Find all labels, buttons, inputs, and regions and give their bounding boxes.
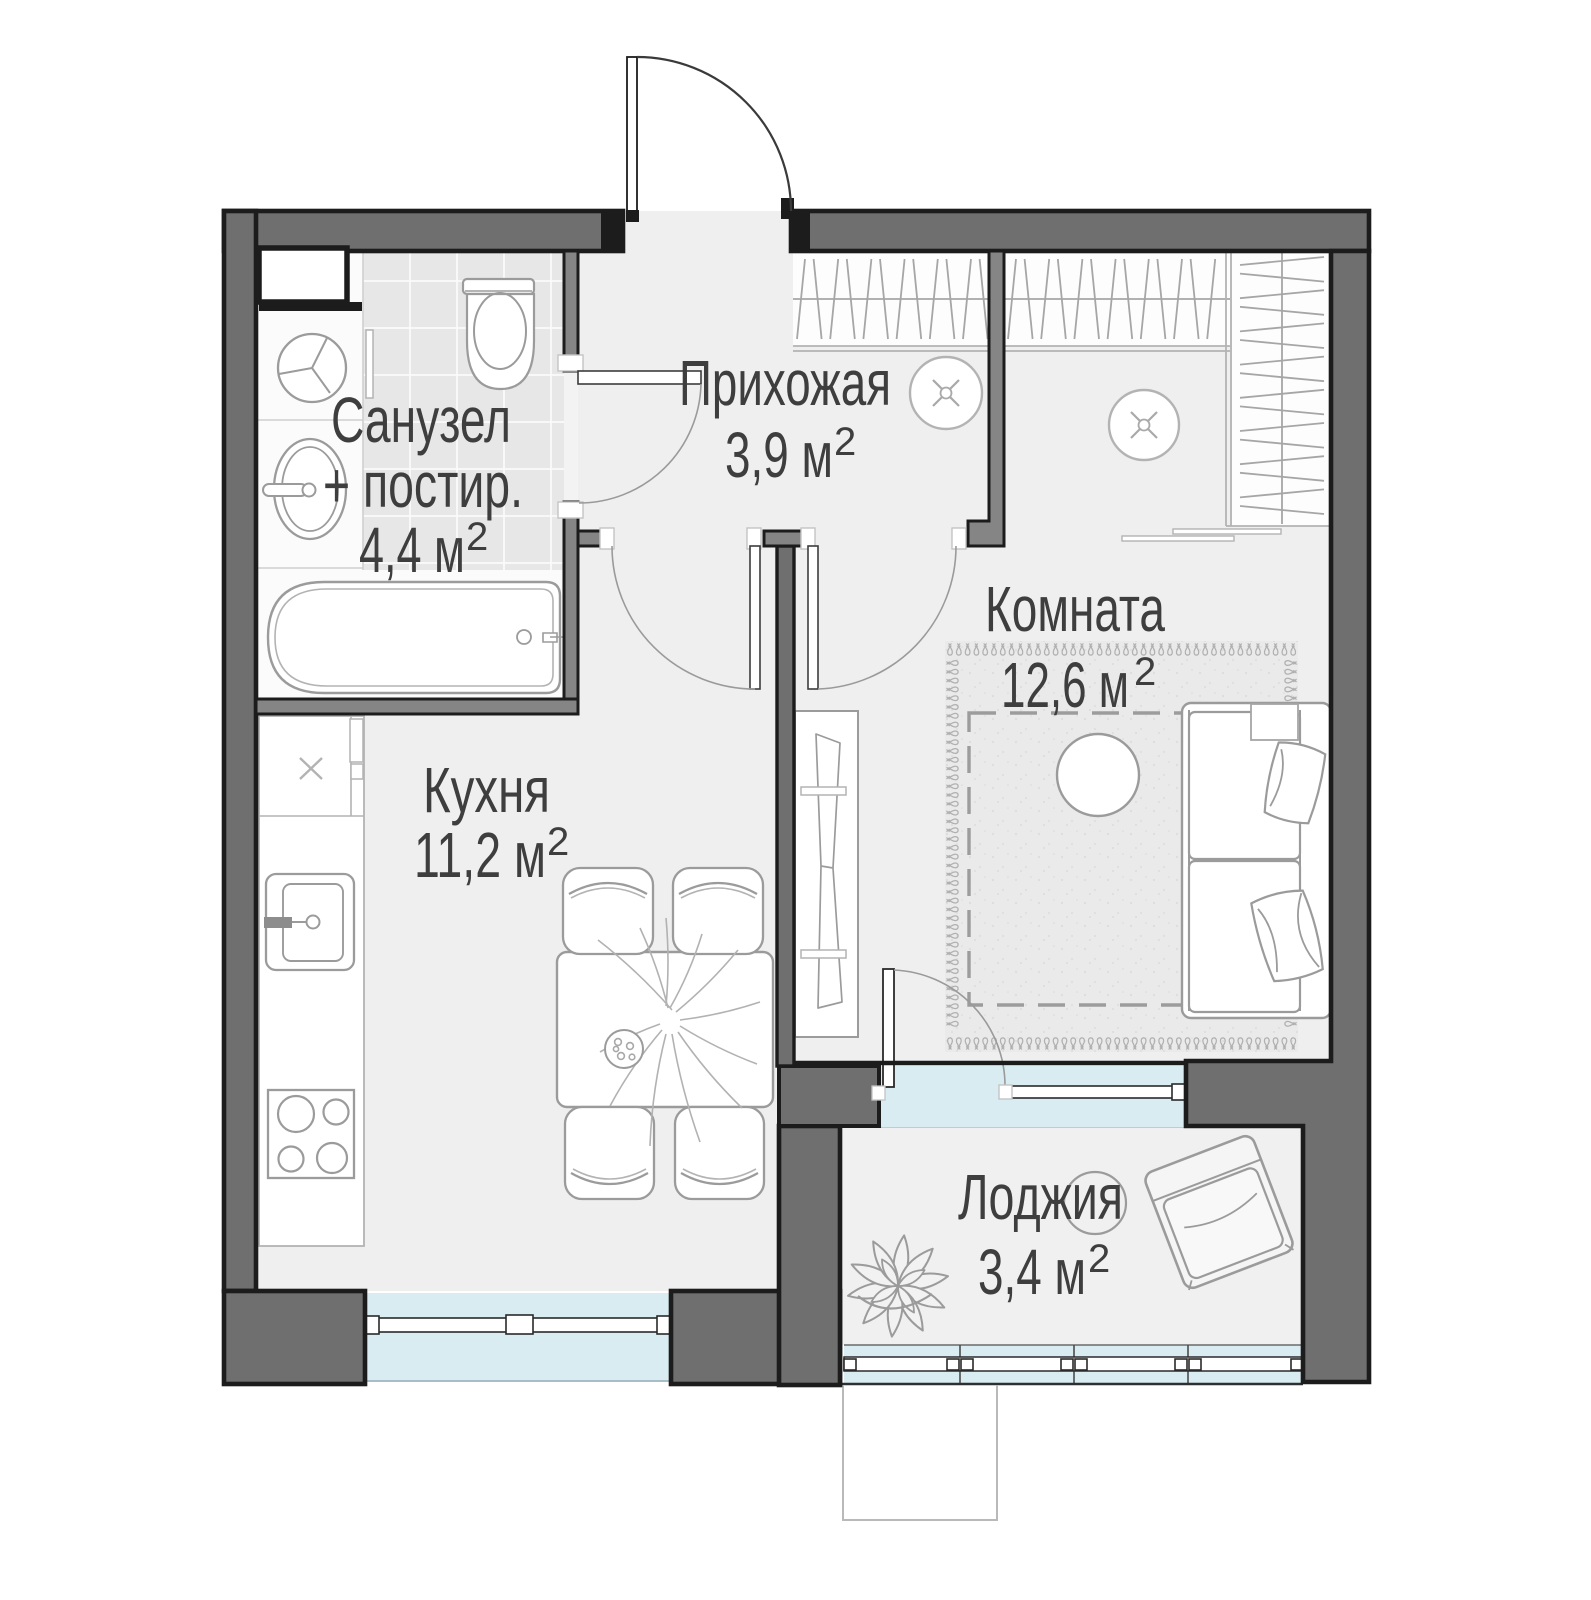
svg-text:2: 2 xyxy=(834,420,856,464)
svg-text:+ постир.: + постир. xyxy=(323,449,523,521)
svg-text:11,2 м: 11,2 м xyxy=(414,819,546,891)
svg-text:2: 2 xyxy=(1134,650,1156,694)
svg-text:12,6 м: 12,6 м xyxy=(1001,649,1129,721)
svg-text:4,4 м: 4,4 м xyxy=(359,514,465,586)
svg-text:3,4 м: 3,4 м xyxy=(978,1236,1086,1308)
svg-text:Кухня: Кухня xyxy=(423,754,550,826)
svg-text:Прихожая: Прихожая xyxy=(679,347,891,419)
svg-text:2: 2 xyxy=(466,515,488,559)
svg-text:Санузел: Санузел xyxy=(331,384,511,456)
svg-text:2: 2 xyxy=(547,820,569,864)
svg-text:2: 2 xyxy=(1088,1237,1110,1281)
svg-text:Комната: Комната xyxy=(985,573,1165,645)
svg-text:Лоджия: Лоджия xyxy=(958,1161,1123,1233)
svg-text:3,9 м: 3,9 м xyxy=(725,419,833,491)
